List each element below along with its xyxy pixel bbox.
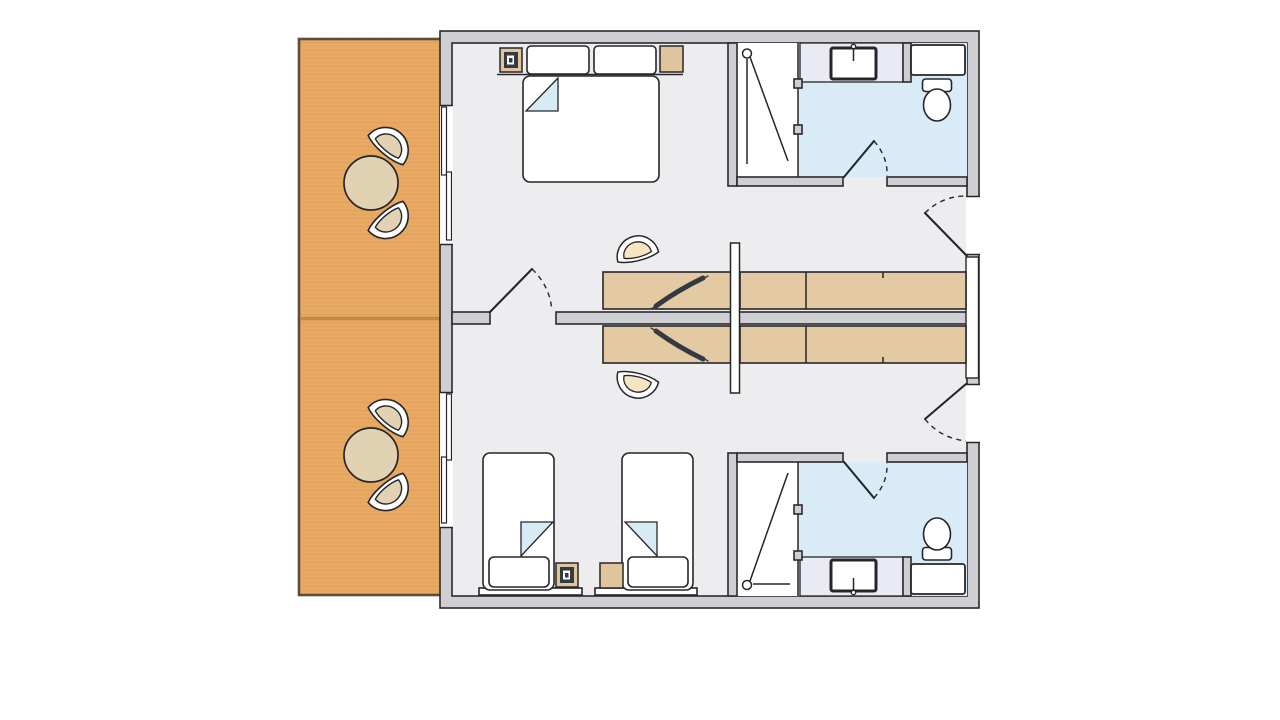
window-pane <box>447 172 452 240</box>
partition-fin <box>731 243 740 393</box>
pillow <box>489 557 549 587</box>
glass-hinge <box>794 551 802 560</box>
wardrobe-lower <box>740 326 966 363</box>
bathroom-wall-upper-left <box>737 177 843 186</box>
bathroom-wall-vertical-upper <box>728 43 737 186</box>
desk <box>603 272 731 309</box>
pillow <box>628 557 688 587</box>
desk <box>603 326 731 363</box>
door-opening <box>966 196 980 255</box>
wall-panel-right <box>966 257 979 378</box>
dividing-wall-left <box>452 312 490 324</box>
dividing-wall-right <box>556 312 967 324</box>
window-pane <box>447 394 452 460</box>
terrace <box>299 39 442 595</box>
nightstand <box>600 563 623 588</box>
wall-stub <box>903 557 911 596</box>
bathroom-wall-upper-right <box>887 177 967 186</box>
window-sliding-upper <box>440 105 453 245</box>
bathroom-wall-lower-left <box>737 453 843 462</box>
toilet <box>923 79 952 121</box>
wardrobe-upper <box>740 272 966 309</box>
washbasin <box>831 44 876 79</box>
door-opening <box>966 384 980 443</box>
double-bed <box>523 76 659 182</box>
bathroom-wall-lower-right <box>887 453 967 462</box>
shower-floor <box>737 43 798 177</box>
shower-floor <box>737 462 798 596</box>
glass-hinge <box>794 79 802 88</box>
entrance-opening-upper <box>966 196 980 255</box>
floor-plan <box>0 0 1280 720</box>
pillow <box>527 46 589 74</box>
window-pane <box>442 107 447 175</box>
toilet <box>923 518 952 560</box>
bathroom-cabinet <box>911 45 965 75</box>
glass-hinge <box>794 125 802 134</box>
glass-hinge <box>794 505 802 514</box>
window-pane <box>442 457 447 523</box>
nightstand <box>660 46 683 72</box>
washbasin <box>831 560 876 595</box>
nightstand-lamp-icon <box>556 563 578 587</box>
bathroom-cabinet <box>911 564 965 594</box>
floor-plan-page <box>0 0 1280 720</box>
pillow <box>594 46 656 74</box>
bathroom-wall-vertical-lower <box>728 453 737 596</box>
nightstand-lamp-icon <box>500 48 522 72</box>
wardrobe <box>740 326 966 363</box>
window-sliding-lower <box>440 392 453 528</box>
entrance-opening-lower <box>966 384 980 443</box>
wardrobe <box>740 272 966 309</box>
wall-stub <box>903 43 911 82</box>
